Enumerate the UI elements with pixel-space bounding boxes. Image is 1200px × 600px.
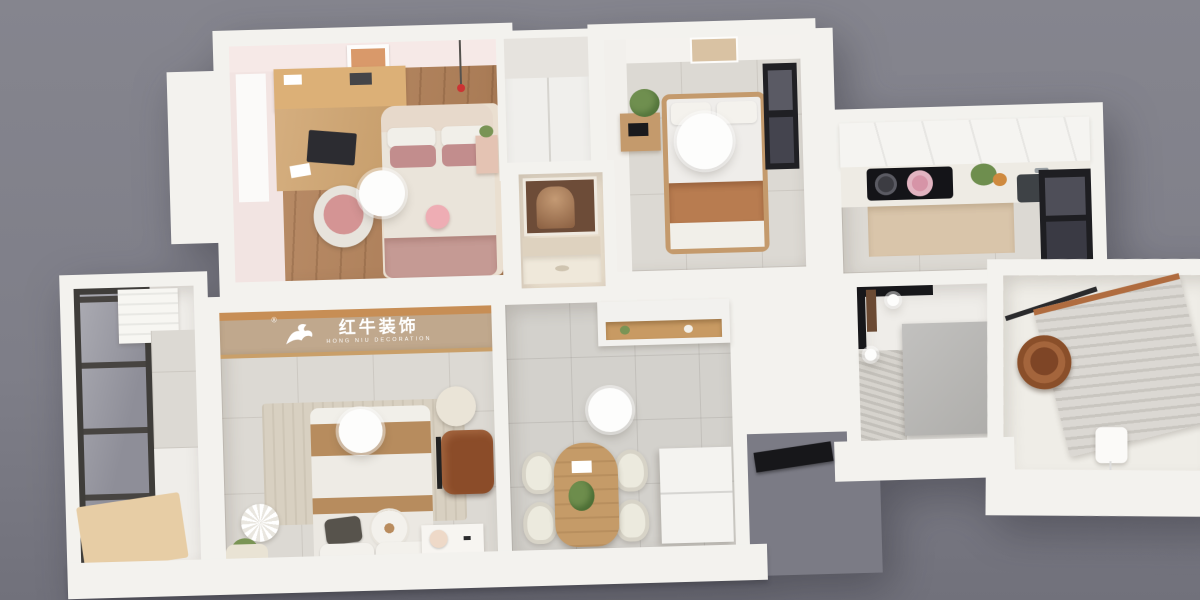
vanity-cabinet bbox=[523, 254, 602, 284]
room-master-bedroom: 红牛装饰 HONG NIU DECORATION ® bbox=[203, 289, 516, 587]
banner-logo-text: 红牛装饰 HONG NIU DECORATION bbox=[326, 317, 432, 345]
room-shower bbox=[842, 269, 1007, 463]
room-guest-bedroom bbox=[587, 18, 822, 288]
hallway-niche-cabinet bbox=[597, 299, 730, 347]
dark-pillow bbox=[324, 515, 363, 546]
room-laundry bbox=[987, 259, 1200, 491]
closet-shelf-face bbox=[504, 37, 589, 79]
glass-partition-frame-side bbox=[857, 287, 867, 349]
paper-sheet bbox=[289, 163, 311, 178]
cabinet-handle bbox=[555, 265, 569, 271]
niche-open-shelf bbox=[606, 319, 722, 340]
dining-table bbox=[553, 442, 620, 548]
registered-mark: ® bbox=[271, 317, 276, 324]
drying-rack-bar bbox=[1033, 273, 1180, 315]
vanity-counter bbox=[522, 236, 600, 256]
mauve-pillow bbox=[390, 145, 437, 168]
window-pane bbox=[1046, 221, 1087, 262]
hongniu-bull-logo-icon bbox=[281, 320, 318, 347]
table-plant bbox=[568, 481, 595, 512]
render-canvas: 红牛装饰 HONG NIU DECORATION ® bbox=[0, 0, 1200, 600]
fridge-door-line bbox=[660, 491, 732, 495]
banner-logo-en: HONG NIU DECORATION bbox=[326, 337, 431, 345]
room-kids-bedroom bbox=[212, 23, 519, 299]
guest-window bbox=[763, 63, 800, 170]
clock-radio bbox=[628, 123, 648, 137]
vanity-mirror bbox=[523, 176, 599, 236]
room-dining bbox=[491, 284, 751, 566]
master-nightstand bbox=[421, 524, 484, 554]
dining-chair bbox=[613, 449, 648, 492]
duvet-fold bbox=[670, 221, 765, 250]
brand-banner: 红牛装饰 HONG NIU DECORATION ® bbox=[219, 305, 493, 359]
wall-art-beach bbox=[690, 36, 739, 63]
kids-nightstand bbox=[475, 135, 498, 174]
apartment: 红牛装饰 HONG NIU DECORATION ® bbox=[47, 0, 1173, 600]
banner-logo-cn: 红牛装饰 bbox=[326, 317, 432, 337]
desk-papers bbox=[284, 75, 302, 85]
laptop bbox=[307, 130, 357, 166]
pink-pot bbox=[907, 170, 934, 197]
paper-fan-flower bbox=[241, 503, 280, 542]
kitchen-window bbox=[1039, 169, 1094, 268]
mauve-blanket bbox=[384, 235, 497, 278]
shower-floor-drain bbox=[859, 350, 908, 449]
guest-nightstand bbox=[620, 113, 661, 152]
upper-cabinets bbox=[839, 117, 1090, 168]
mirror-reflection bbox=[536, 186, 575, 229]
cooktop bbox=[866, 166, 953, 200]
room-balcony bbox=[59, 271, 215, 581]
window-pane bbox=[769, 117, 794, 164]
pendant-lamp-red-bead bbox=[457, 84, 465, 92]
wall-hall-shower bbox=[741, 281, 855, 434]
niche-plant bbox=[620, 325, 630, 334]
dining-chair bbox=[521, 452, 556, 495]
desk-hutch bbox=[273, 66, 406, 112]
room-bathroom-vanity bbox=[506, 160, 618, 301]
closet-shaft bbox=[496, 28, 600, 181]
remote bbox=[464, 536, 471, 540]
dining-chair bbox=[615, 499, 650, 542]
ceiling-lamp bbox=[588, 387, 633, 432]
partition-block bbox=[902, 321, 993, 435]
pan bbox=[875, 173, 898, 196]
balcony-tiled-wall bbox=[151, 330, 198, 449]
copper-basin-inner bbox=[1030, 347, 1058, 375]
window-pane bbox=[768, 70, 793, 111]
leather-chair bbox=[441, 429, 495, 494]
wall-switch-panel bbox=[1095, 427, 1127, 463]
door-wood-edge bbox=[866, 290, 877, 332]
window-pane bbox=[1045, 177, 1086, 216]
pouf bbox=[435, 386, 476, 427]
terracotta-blanket bbox=[669, 181, 764, 224]
table-card bbox=[572, 461, 592, 474]
banner-wood-trim-bottom bbox=[220, 347, 493, 359]
tall-cabinets-face bbox=[868, 203, 1015, 257]
desk-books bbox=[350, 73, 372, 86]
desk-chair-cushion bbox=[323, 194, 364, 235]
wall-under-laundry bbox=[985, 469, 1200, 517]
refrigerator bbox=[659, 447, 734, 544]
whiteboard bbox=[236, 74, 270, 203]
ball-lamp bbox=[429, 530, 447, 548]
copper-basin bbox=[1017, 335, 1071, 389]
chair-frame-rail bbox=[436, 437, 442, 489]
dining-chair bbox=[523, 502, 558, 545]
bed-duvet bbox=[311, 453, 432, 498]
ceiling-spotlight bbox=[887, 294, 899, 306]
niche-decor bbox=[684, 325, 693, 333]
